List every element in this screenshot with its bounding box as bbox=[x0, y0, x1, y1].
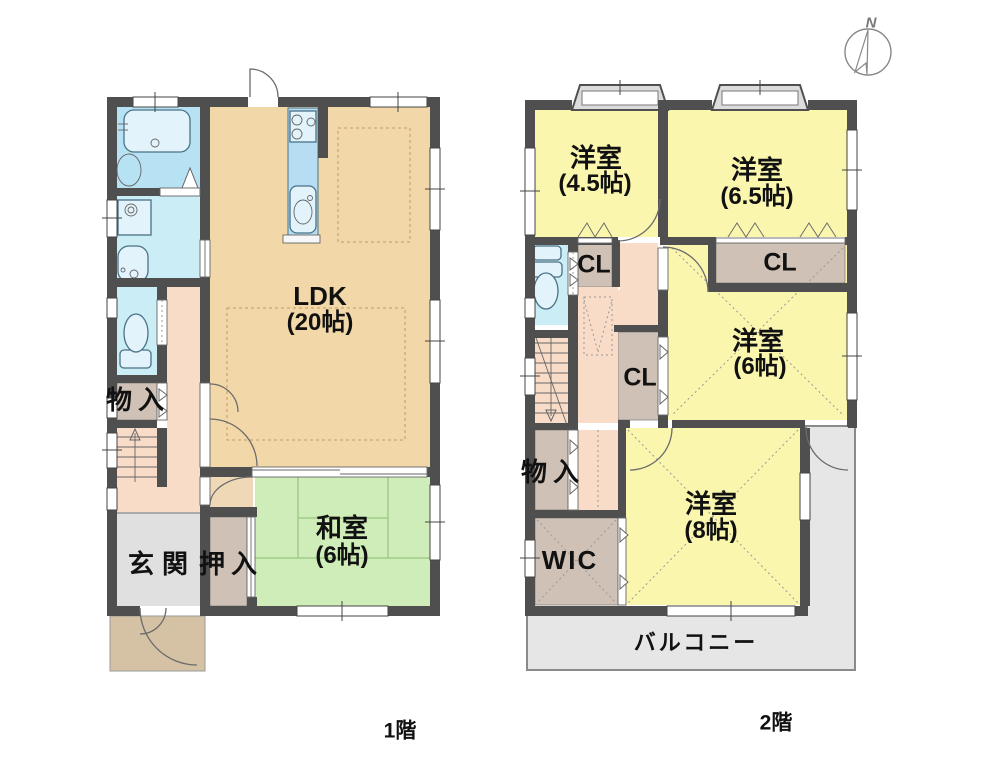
bedroom45-area-label: (4.5帖) bbox=[558, 172, 631, 196]
bedroom8-area-label: (8帖) bbox=[684, 519, 737, 543]
floor1-plan bbox=[102, 69, 445, 671]
compass-icon bbox=[845, 29, 891, 75]
storage1f-label: 物入 bbox=[106, 387, 170, 413]
balcony-label: バルコニー bbox=[634, 632, 759, 654]
bedroom65-area-label: (6.5帖) bbox=[720, 185, 793, 209]
washitsu-area-label: (6帖) bbox=[315, 544, 368, 568]
bedroom65-label: 洋室 bbox=[731, 157, 783, 183]
floor1-caption: 1階 bbox=[384, 721, 417, 742]
closet-left-label: CL bbox=[577, 253, 610, 278]
kitchen-counter bbox=[283, 108, 320, 243]
closet-right-label: CL bbox=[763, 251, 796, 276]
hallway2f-area bbox=[620, 243, 658, 290]
porch-area bbox=[110, 616, 205, 671]
washing-machine-icon bbox=[118, 200, 151, 235]
north-label: N bbox=[866, 16, 877, 31]
closet-mid-label: CL bbox=[623, 366, 656, 391]
ldk-area-label: (20帖) bbox=[287, 311, 354, 335]
vanity-icon bbox=[118, 246, 148, 282]
ldk-label: LDK bbox=[293, 283, 346, 309]
hallway1f-area bbox=[167, 287, 200, 513]
entrance-label: 玄関 bbox=[128, 551, 196, 577]
floor-plan-drawing bbox=[0, 0, 994, 768]
bedroom6-label: 洋室 bbox=[732, 328, 784, 354]
storage2f-label: 物入 bbox=[521, 459, 585, 485]
oshiire-label: 押入 bbox=[199, 551, 263, 577]
bedroom8-label: 洋室 bbox=[685, 491, 737, 517]
bedroom45-label: 洋室 bbox=[570, 145, 622, 171]
floor2-caption: 2階 bbox=[760, 713, 793, 734]
bedroom6-area-label: (6帖) bbox=[733, 355, 786, 379]
washitsu-label: 和室 bbox=[316, 515, 368, 541]
floorplan-image: LDK (20帖) 和室 (6帖) 玄関 押入 物入 1階 洋室 (4.5帖) … bbox=[0, 0, 994, 768]
wic-label: WIC bbox=[542, 547, 599, 573]
